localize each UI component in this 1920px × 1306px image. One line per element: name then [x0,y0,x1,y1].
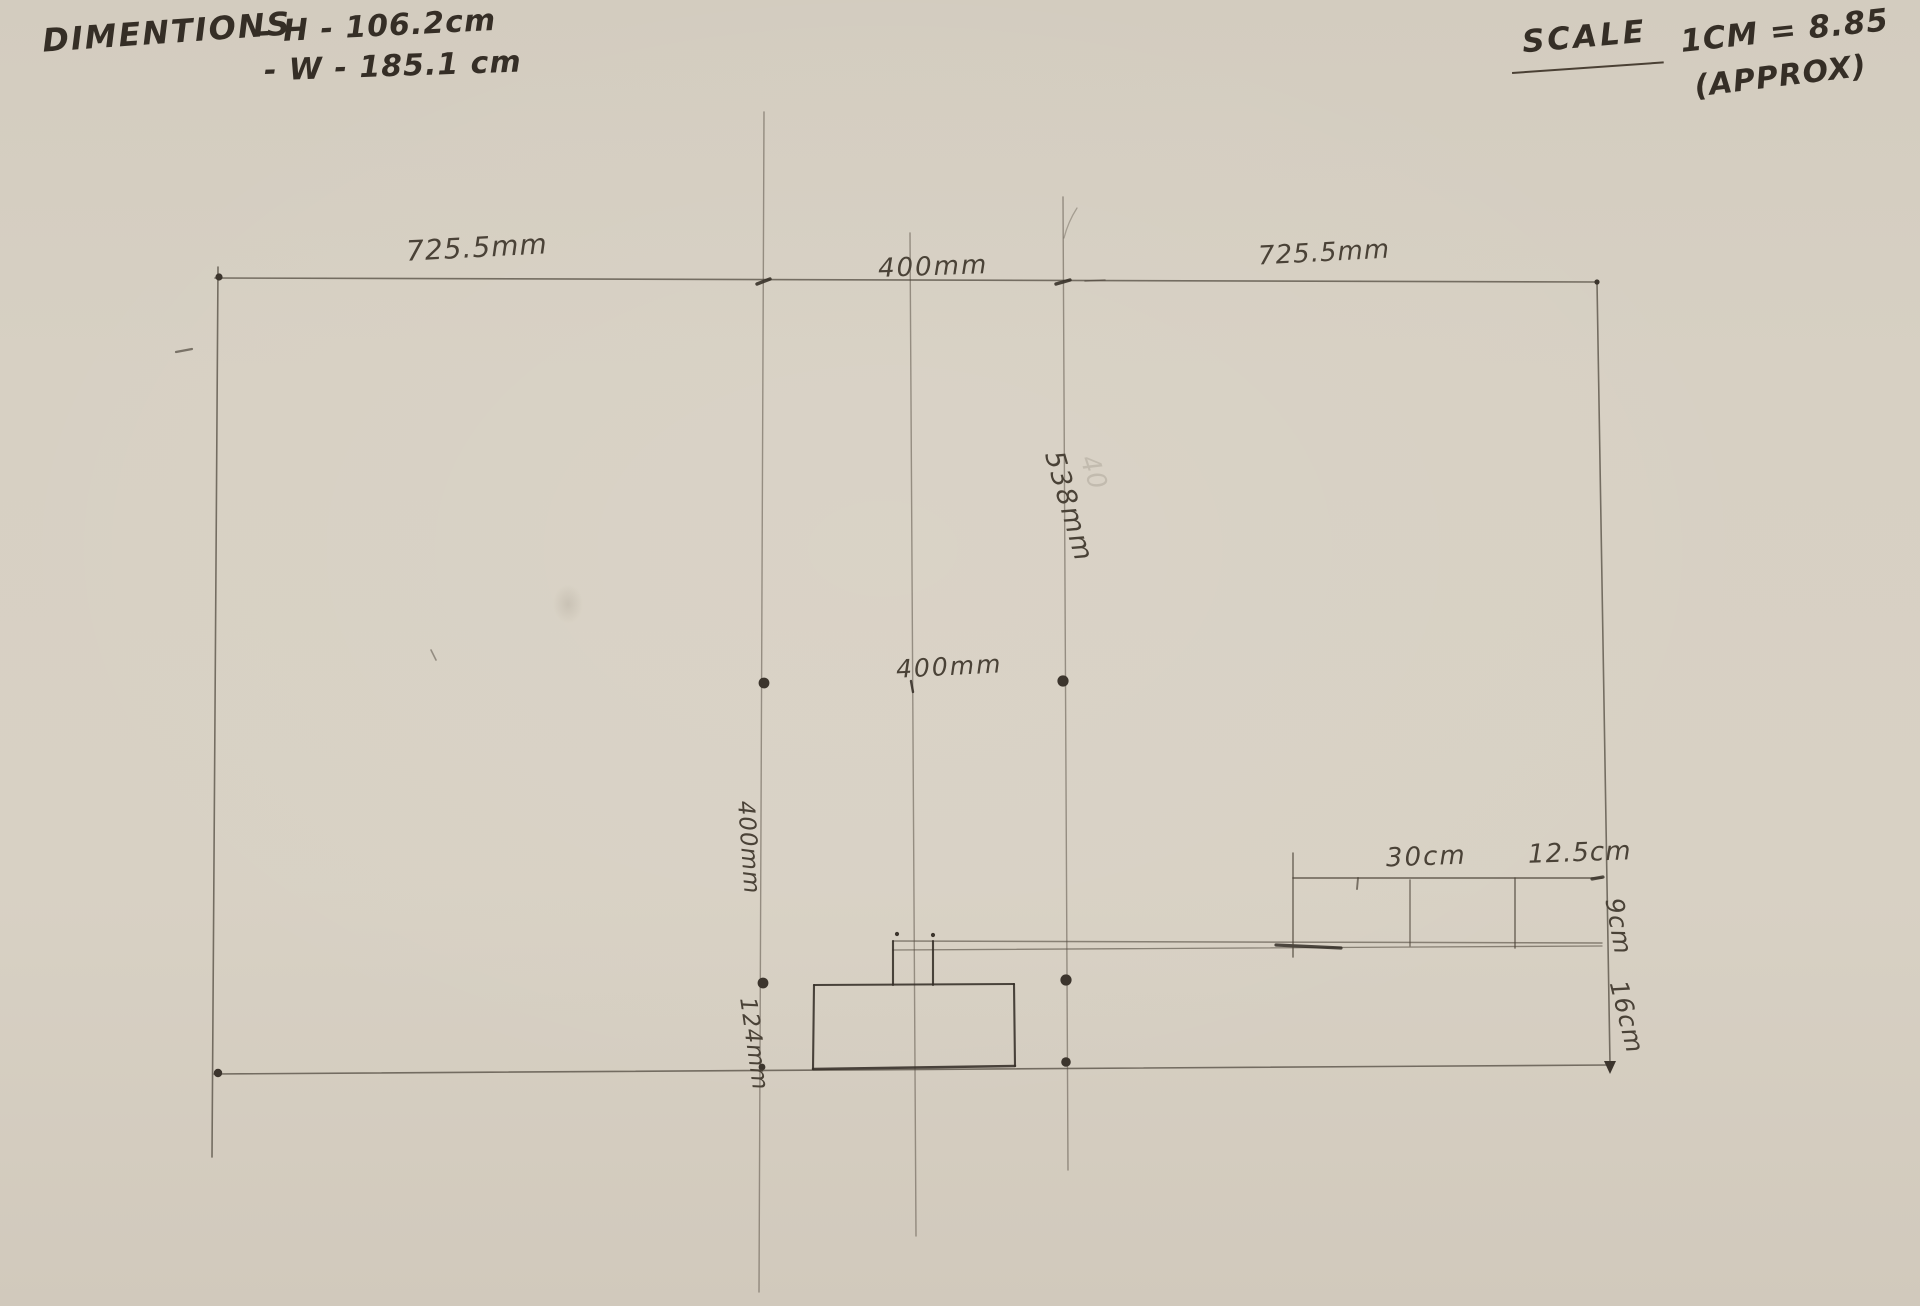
dot-left-538 [759,678,770,689]
rail-lower [893,946,1602,950]
dot-right-938 [1060,974,1071,985]
dot-top-left-corner [215,273,222,280]
band-small-tick [1357,878,1358,889]
dot-bottom-left-corner [214,1069,222,1077]
dot-top-right-corner [1594,279,1599,284]
construction-lines [759,112,1068,1292]
arrowhead-bottom-right [1604,1061,1616,1074]
dot-left-938 [758,978,769,989]
dim-label-mid-400: 400mm [895,651,1003,682]
stray-tick-mid-left [431,650,436,660]
pencil-smudge [548,578,588,630]
box-top-edge [814,984,1014,985]
width-dimension-note: - W - 185.1 cm [264,48,523,87]
double-rail [893,941,1602,950]
stray-dash-top [1085,280,1105,281]
band-right-nub [1592,877,1603,879]
box-left-edge [813,985,814,1069]
stray-curve-top [1064,208,1077,238]
rect-left-edge [212,267,218,1157]
dot-small-above-box-left [895,932,899,936]
dot-right-bottom [1061,1057,1071,1067]
dim-label-top-400: 400mm [878,252,989,282]
rail-upper [893,941,1602,943]
paper-sheet: DIMENTIONS - H - 106.2cm - W - 185.1 cm … [0,0,1920,1306]
box-right-edge [1014,984,1015,1066]
stray-dash-left-margin [176,349,192,352]
construction-line-center [910,233,916,1236]
dim-label-top-left-725: 725.5mm [405,230,548,265]
dim-label-30cm: 30cm [1386,843,1468,872]
dim-label-vertical-400: 400mm [733,800,762,895]
dim-label-12-5cm: 12.5cm [1528,838,1632,868]
construction-line-left [759,112,764,1292]
dot-small-above-box-right [931,933,935,937]
dot-right-538 [1057,675,1068,686]
dim-label-top-right-725: 725.5mm [1257,237,1390,270]
